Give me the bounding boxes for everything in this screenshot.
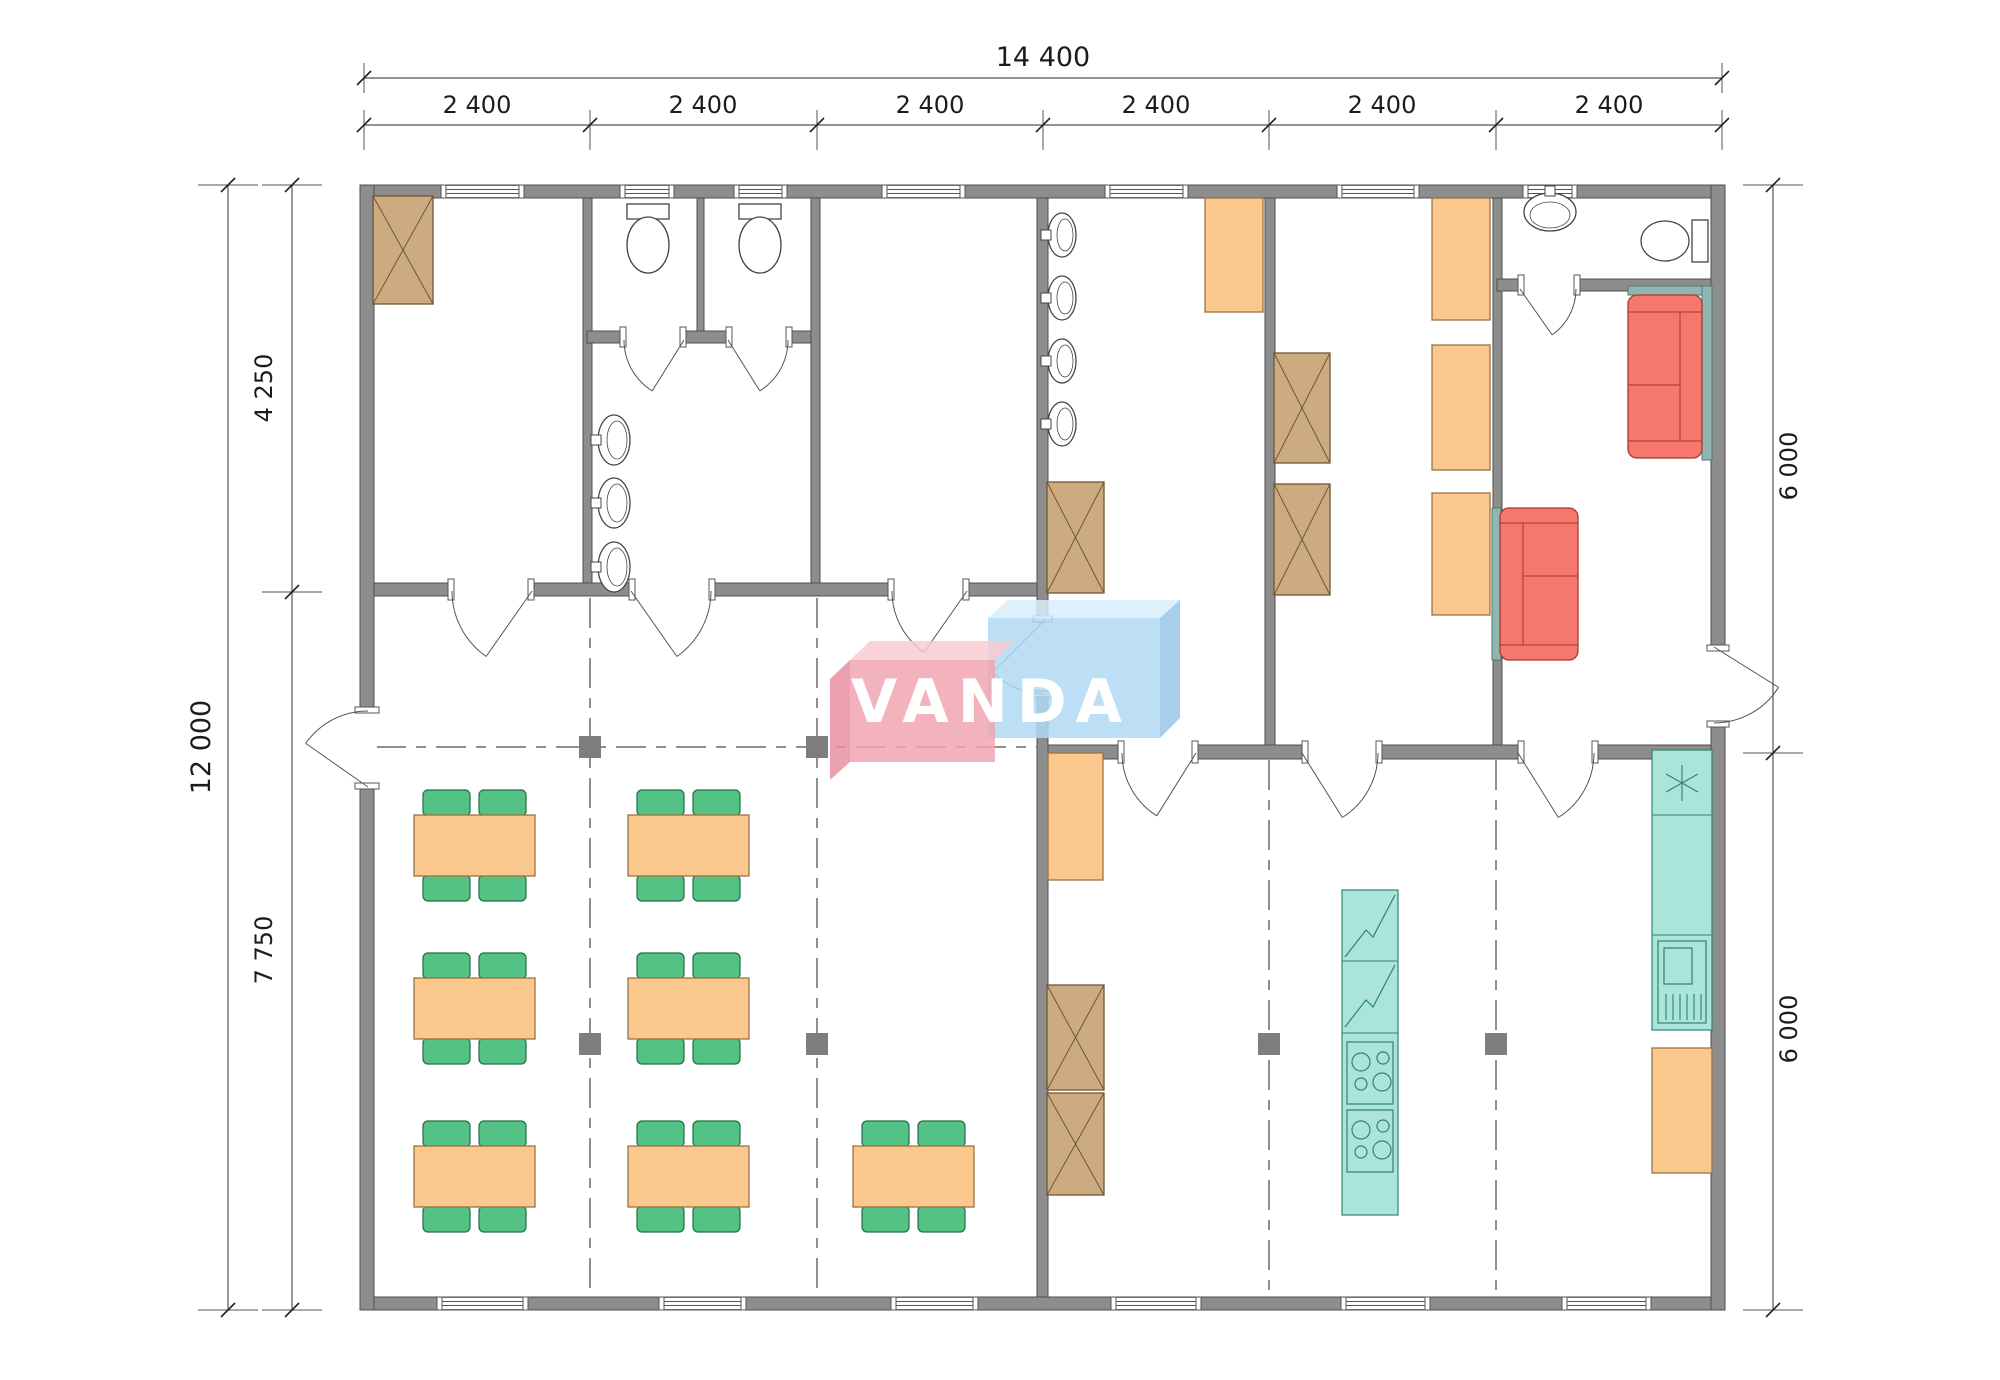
dim-top-seg-5: 2 400 <box>1348 91 1417 119</box>
door-opening-toilets-post <box>629 579 635 600</box>
chair <box>423 1038 470 1064</box>
washbasin <box>598 415 630 465</box>
window-room3-frame <box>882 185 887 198</box>
chair <box>918 1121 965 1147</box>
door-opening-stall1 <box>622 329 684 345</box>
window-dining-1-frame <box>437 1297 442 1310</box>
sofa-lounge-left <box>1500 508 1578 660</box>
counter-kitchen-left <box>1048 753 1103 880</box>
sofa-lounge-right-back <box>1702 286 1712 460</box>
toilet-stall1 <box>627 217 669 273</box>
door-opening-stall2-post <box>786 327 792 347</box>
dim-top-seg-3: 2 400 <box>896 91 965 119</box>
logo-block-pink-top <box>850 641 1015 660</box>
wall-exterior-bottom <box>360 1297 1722 1310</box>
floor-plan-page: 14 400 2 400 2 400 2 400 2 400 2 400 2 4… <box>0 0 2000 1380</box>
door-stall1 <box>624 340 684 391</box>
dim-top-total: 14 400 <box>996 42 1090 73</box>
chair <box>693 1038 740 1064</box>
window-dining-3 <box>893 1298 976 1309</box>
window-stall1 <box>622 186 672 197</box>
window-room5 <box>1339 186 1417 197</box>
chair <box>479 790 526 816</box>
chair <box>479 953 526 979</box>
washbasin <box>598 478 630 528</box>
chair <box>693 1206 740 1232</box>
washbasin-small <box>1048 213 1076 257</box>
window-kitchen-2-frame <box>1425 1297 1430 1310</box>
door-opening-stall1-post <box>680 327 686 347</box>
window-dining-1 <box>439 1298 526 1309</box>
door-opening-kitchen-2-post <box>1302 741 1308 763</box>
door-opening-room3-post <box>888 579 894 600</box>
door-opening-kitchen-3-post <box>1518 741 1524 763</box>
washbasin-small-tap <box>1041 230 1051 240</box>
window-kitchen-1 <box>1113 1298 1199 1309</box>
door-kitchen-1 <box>1122 753 1196 816</box>
dim-top-seg-2: 2 400 <box>669 91 738 119</box>
door-opening-exterior-right-post <box>1707 645 1729 651</box>
wall-dining-right-bottom <box>1037 695 1048 1297</box>
window-kitchen-2-frame <box>1341 1297 1346 1310</box>
logo-block-blue-side <box>1160 600 1180 738</box>
door-kitchen-3 <box>1518 753 1594 818</box>
wall-stall-divider <box>697 198 704 335</box>
logo-block-blue-top <box>988 600 1180 618</box>
chair <box>479 1038 526 1064</box>
chair <box>693 790 740 816</box>
bench-room5-2 <box>1432 345 1490 470</box>
kitchen-unit-mid <box>1342 890 1398 1215</box>
window-washroom-frame <box>1105 185 1110 198</box>
dim-right-upper: 6 000 <box>1775 432 1803 501</box>
door-toilets <box>631 591 711 657</box>
window-dining-2-frame <box>659 1297 664 1310</box>
door-opening-room1 <box>450 581 532 598</box>
washbasin-tap <box>591 435 601 445</box>
chair <box>693 1121 740 1147</box>
toilet-stall2 <box>739 217 781 273</box>
counter-washroom <box>1205 198 1263 312</box>
wall-dining-right-top <box>1037 198 1048 618</box>
window-room5-frame <box>1337 185 1342 198</box>
window-room1-frame <box>519 185 524 198</box>
chair <box>637 1121 684 1147</box>
window-room5-frame <box>1414 185 1419 198</box>
door-opening-room3-post <box>963 579 969 600</box>
window-room1-frame <box>441 185 446 198</box>
chair <box>693 875 740 901</box>
door-opening-stall2 <box>728 329 790 345</box>
wall-room1-right <box>583 198 592 592</box>
washbasin-small-tap <box>1041 356 1051 366</box>
door-wc <box>1520 289 1576 335</box>
chair <box>479 1206 526 1232</box>
window-room3 <box>884 186 963 197</box>
door-opening-toilets <box>631 581 713 598</box>
chair <box>479 1121 526 1147</box>
door-opening-kitchen-1 <box>1120 743 1196 761</box>
wall-washroom-right <box>1265 198 1275 753</box>
door-opening-kitchen-3 <box>1520 743 1596 761</box>
door-opening-stall1-post <box>620 327 626 347</box>
grid-marker <box>1258 1033 1280 1055</box>
dining-table <box>628 978 749 1039</box>
washbasin-small <box>1048 339 1076 383</box>
bench-room5-3 <box>1432 493 1490 615</box>
door-opening-kitchen-2 <box>1304 743 1380 761</box>
counter-kitchen-right <box>1652 1048 1712 1173</box>
window-stall2-frame <box>782 185 787 198</box>
chair <box>918 1206 965 1232</box>
chair <box>479 875 526 901</box>
door-opening-toilets-post <box>709 579 715 600</box>
door-opening-room3 <box>890 581 967 598</box>
chair <box>637 790 684 816</box>
chair <box>693 953 740 979</box>
dining-table <box>414 1146 535 1207</box>
dining-table <box>628 815 749 876</box>
dining-table <box>414 815 535 876</box>
dim-top-seg-6: 2 400 <box>1575 91 1644 119</box>
door-opening-kitchen-2-post <box>1376 741 1382 763</box>
door-room1 <box>452 591 532 657</box>
wc-sink-tap <box>1545 186 1555 196</box>
door-opening-exterior-right <box>1709 647 1727 725</box>
sofa-lounge-right-back <box>1628 286 1712 295</box>
door-kitchen-2 <box>1302 753 1378 818</box>
window-kitchen-1-frame <box>1111 1297 1116 1310</box>
window-washroom-frame <box>1183 185 1188 198</box>
grid-marker <box>579 736 601 758</box>
washbasin-small <box>1048 276 1076 320</box>
wall-exterior-right <box>1711 185 1725 1310</box>
window-wc-frame <box>1572 185 1577 198</box>
window-dining-1-frame <box>523 1297 528 1310</box>
washbasin-small-tap <box>1041 419 1051 429</box>
chair <box>423 875 470 901</box>
washbasin-tap <box>591 562 601 572</box>
chair <box>423 790 470 816</box>
chair <box>637 1206 684 1232</box>
window-kitchen-2 <box>1343 1298 1428 1309</box>
door-opening-stall2-post <box>726 327 732 347</box>
chair <box>423 1206 470 1232</box>
logo-block-pink-side <box>830 660 850 780</box>
window-kitchen-3-frame <box>1646 1297 1651 1310</box>
toilet-wc-tank <box>1692 220 1708 262</box>
chair <box>423 953 470 979</box>
washbasin <box>598 542 630 592</box>
washbasin-small <box>1048 402 1076 446</box>
window-stall2-frame <box>734 185 739 198</box>
toilet-wc <box>1641 221 1689 261</box>
chair <box>637 953 684 979</box>
wc-sink <box>1524 193 1576 231</box>
washbasin-small-tap <box>1041 293 1051 303</box>
dim-left-total: 12 000 <box>186 700 217 794</box>
door-opening-entrance-left-post <box>355 707 379 713</box>
window-dining-2-frame <box>741 1297 746 1310</box>
door-opening-room1-post <box>528 579 534 600</box>
dim-top-seg-1: 2 400 <box>443 91 512 119</box>
door-opening-wc-post <box>1518 275 1524 295</box>
bench-room5-1 <box>1432 198 1490 320</box>
window-kitchen-1-frame <box>1196 1297 1201 1310</box>
door-opening-wc-post <box>1574 275 1580 295</box>
door-stall2 <box>728 340 788 391</box>
chair <box>423 1121 470 1147</box>
dim-left-lower: 7 750 <box>250 916 278 985</box>
window-stall1-frame <box>620 185 625 198</box>
window-washroom <box>1107 186 1186 197</box>
chair <box>862 1121 909 1147</box>
window-stall1-frame <box>669 185 674 198</box>
washbasin-tap <box>591 498 601 508</box>
dim-left-upper: 4 250 <box>250 354 278 423</box>
window-kitchen-3 <box>1564 1298 1649 1309</box>
door-opening-kitchen-3-post <box>1592 741 1598 763</box>
chair <box>862 1206 909 1232</box>
chair <box>637 1038 684 1064</box>
window-room1 <box>443 186 522 197</box>
window-dining-3-frame <box>891 1297 896 1310</box>
door-opening-entrance-left <box>357 709 377 787</box>
door-opening-kitchen-1-post <box>1192 741 1198 763</box>
window-wc-frame <box>1523 185 1528 198</box>
window-stall2 <box>736 186 785 197</box>
grid-marker <box>1485 1033 1507 1055</box>
dim-right-lower: 6 000 <box>1775 995 1803 1064</box>
dining-table <box>853 1146 974 1207</box>
window-room3-frame <box>960 185 965 198</box>
dining-table <box>414 978 535 1039</box>
sofa-lounge-right <box>1628 295 1702 458</box>
grid-marker <box>579 1033 601 1055</box>
window-dining-2 <box>661 1298 744 1309</box>
grid-marker <box>806 736 828 758</box>
vanda-logo-text: VANDA <box>851 667 1131 737</box>
window-kitchen-3-frame <box>1562 1297 1567 1310</box>
grid-marker <box>806 1033 828 1055</box>
door-opening-room1-post <box>448 579 454 600</box>
wall-toilets-right <box>811 198 820 592</box>
wall-exterior-top <box>360 185 1722 198</box>
door-opening-kitchen-1-post <box>1118 741 1124 763</box>
chair <box>637 875 684 901</box>
dim-top-seg-4: 2 400 <box>1122 91 1191 119</box>
floor-plan-drawing: 14 400 2 400 2 400 2 400 2 400 2 400 2 4… <box>0 0 2000 1380</box>
door-opening-wc <box>1520 277 1578 293</box>
dining-table <box>628 1146 749 1207</box>
window-dining-3-frame <box>973 1297 978 1310</box>
